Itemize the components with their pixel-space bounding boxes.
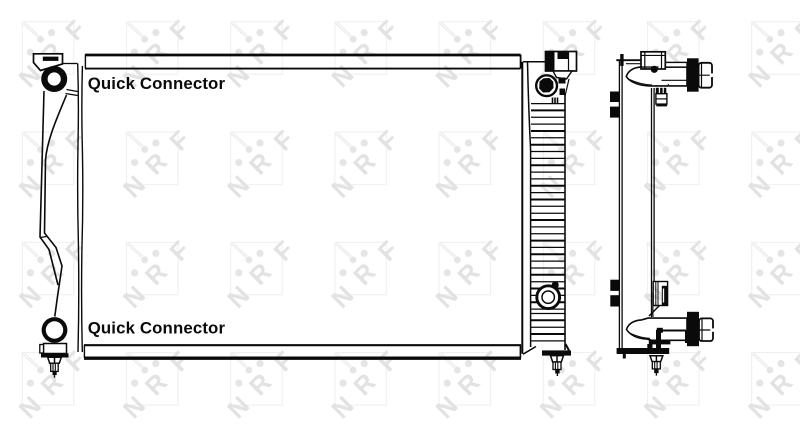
svg-text:Quick Connector: Quick Connector [88, 318, 226, 337]
svg-text:Quick Connector: Quick Connector [88, 74, 226, 93]
